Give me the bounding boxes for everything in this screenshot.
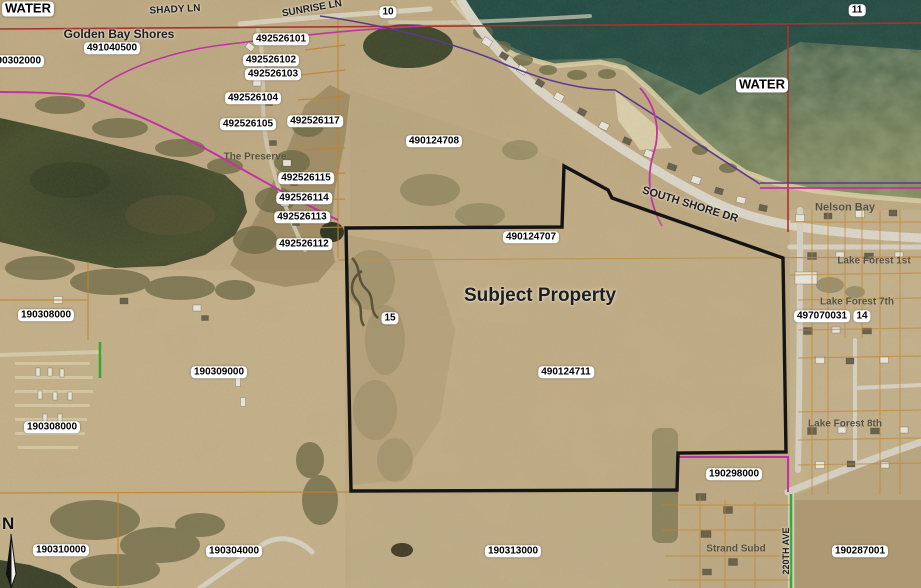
parcel-label-492526101: 492526101 bbox=[253, 33, 309, 45]
parcel-label-490124711: 490124711 bbox=[538, 366, 594, 378]
parcel-label-492526113: 492526113 bbox=[274, 211, 330, 223]
parcel-label-190309000: 190309000 bbox=[191, 366, 247, 378]
parcel-label-190298000: 190298000 bbox=[706, 468, 762, 480]
section-label-11: 11 bbox=[849, 4, 866, 16]
road-label-south-shore-dr: SOUTH SHORE DR bbox=[641, 184, 740, 225]
parcel-label-190308000-south: 190308000 bbox=[24, 421, 80, 433]
parcel-label-190310000: 190310000 bbox=[33, 544, 89, 556]
north-arrow-label: N bbox=[2, 514, 14, 534]
section-label-14: 14 bbox=[853, 310, 870, 322]
parcel-label-492526102: 492526102 bbox=[243, 54, 299, 66]
road-label-sunrise-ln: SUNRISE LN bbox=[281, 0, 343, 20]
parcel-label-190287001: 190287001 bbox=[832, 545, 888, 557]
parcel-label-492526117: 492526117 bbox=[287, 115, 343, 127]
parcel-label-492526105: 492526105 bbox=[220, 118, 276, 130]
subdivision-label-lake-forest-8th: Lake Forest 8th bbox=[808, 418, 882, 430]
section-label-15: 15 bbox=[381, 312, 398, 324]
parcel-label-190313000: 190313000 bbox=[485, 545, 541, 557]
parcel-label-492526115: 492526115 bbox=[278, 172, 334, 184]
subdivision-label-lake-forest-7th: Lake Forest 7th bbox=[820, 296, 894, 308]
parcel-label-190304000: 190304000 bbox=[206, 545, 262, 557]
parcel-label-490124708: 490124708 bbox=[406, 135, 462, 147]
subdivision-label-nelson-bay: Nelson Bay bbox=[815, 202, 875, 215]
subdivision-label-lake-forest-1st: Lake Forest 1st bbox=[837, 255, 910, 267]
parcel-label-492526103: 492526103 bbox=[245, 68, 301, 80]
parcel-label-492526104: 492526104 bbox=[225, 92, 281, 104]
water-label-right: WATER bbox=[736, 78, 788, 93]
subdivision-label-golden-bay-shores: Golden Bay Shores bbox=[64, 28, 175, 42]
parcel-label-497070031: 497070031 bbox=[794, 310, 850, 322]
parcel-label-492526112: 492526112 bbox=[276, 238, 332, 250]
subdivision-label-strand-subd: Strand Subd bbox=[706, 543, 765, 555]
parcel-label-491040500: 491040500 bbox=[84, 42, 140, 54]
subdivision-label-the-preserve: The Preserve bbox=[224, 151, 287, 163]
parcel-label-492526114: 492526114 bbox=[276, 192, 332, 204]
section-label-10: 10 bbox=[379, 6, 396, 18]
parcel-label-490124707: 490124707 bbox=[503, 231, 559, 243]
water-label-left: WATER bbox=[2, 2, 54, 17]
subject-property-label: Subject Property bbox=[464, 285, 616, 307]
map-labels: WATERSHADY LNSUNRISE LN1011Golden Bay Sh… bbox=[0, 0, 921, 588]
parcel-label-190308000-north: 190308000 bbox=[18, 309, 74, 321]
parcel-label-190302000: 190302000 bbox=[0, 55, 44, 67]
road-label-220th-ave: 220TH AVE bbox=[781, 527, 791, 574]
road-label-shady-ln: SHADY LN bbox=[149, 3, 200, 17]
aerial-map[interactable]: WATERSHADY LNSUNRISE LN1011Golden Bay Sh… bbox=[0, 0, 921, 588]
